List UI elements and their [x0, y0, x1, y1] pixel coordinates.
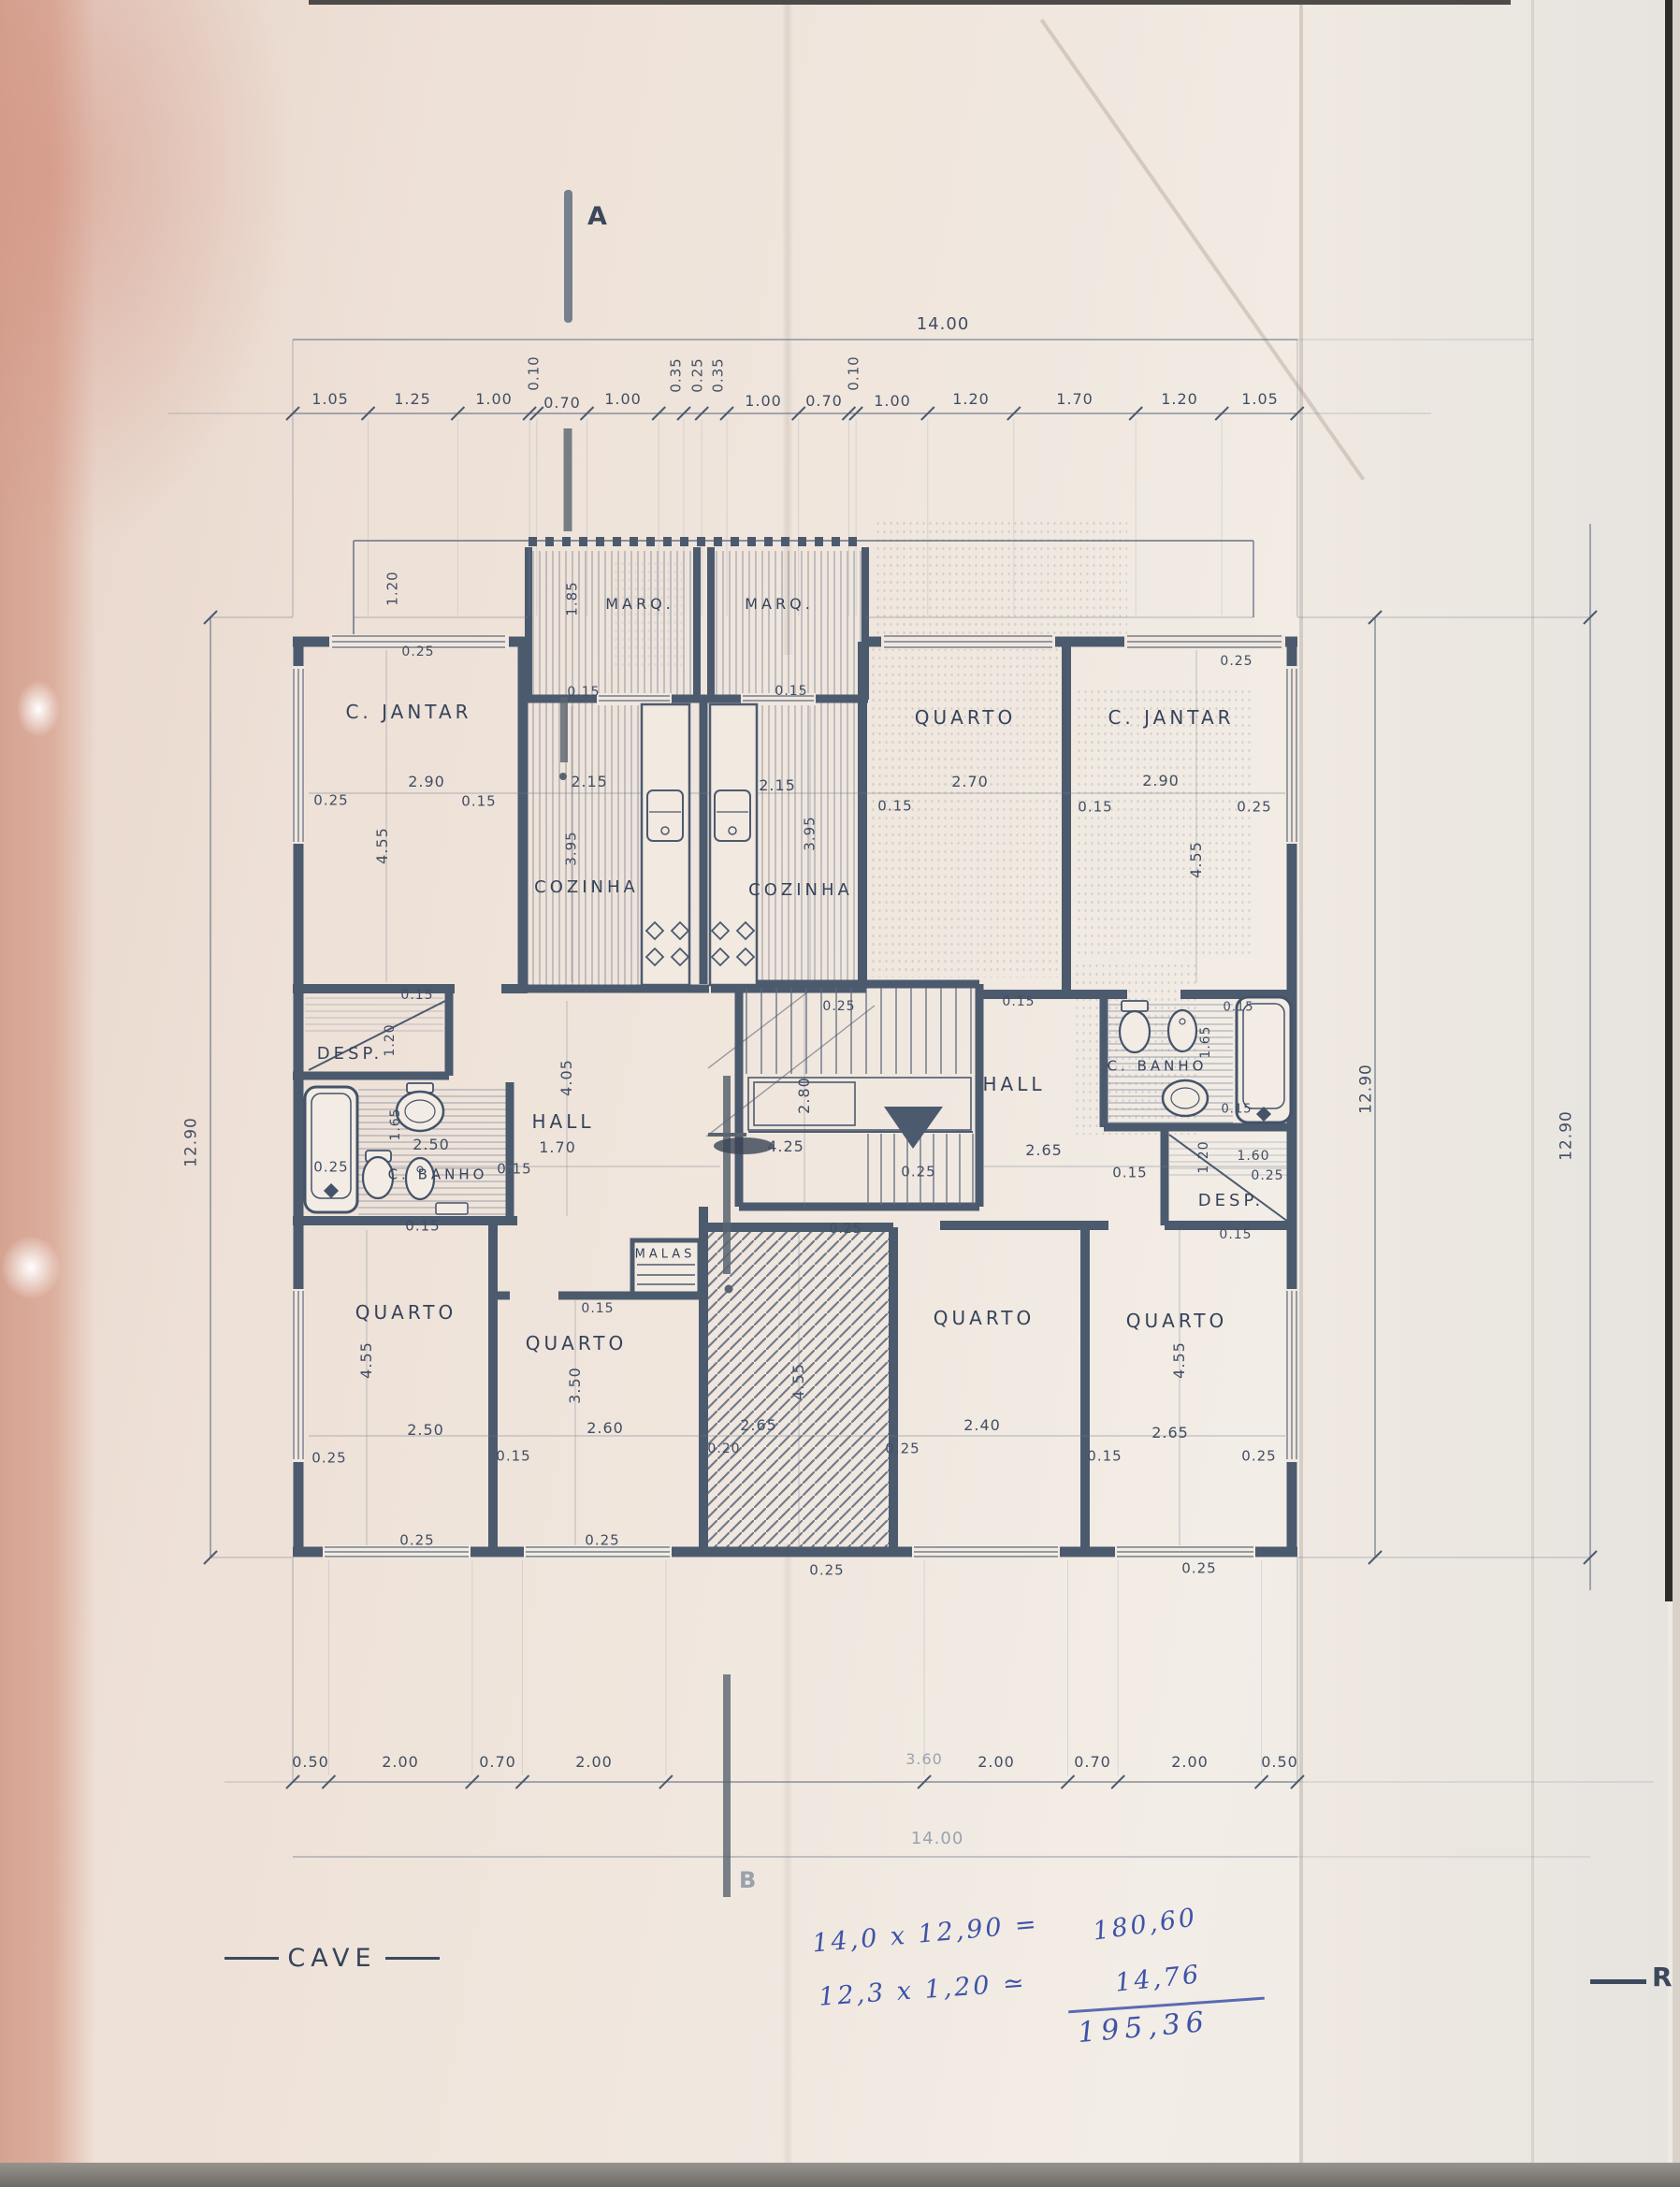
dimension-label: 2.65	[740, 1418, 777, 1433]
malas-closet	[632, 1240, 700, 1294]
plan-title-block: CAVE	[224, 1944, 440, 1973]
dimension-label: 0.70	[805, 394, 843, 409]
dimension-label: 2.50	[407, 1423, 444, 1438]
dimension-label: 2.60	[587, 1421, 624, 1436]
paper-fold-line	[782, 0, 793, 655]
dimension-label: 1.20	[386, 571, 400, 605]
paper-crease	[1040, 19, 1365, 481]
section-marker-a: A	[587, 204, 608, 229]
ink-smudge	[714, 1137, 774, 1154]
dimension-label: 0.15	[775, 685, 807, 698]
dimension-label: 3.95	[565, 831, 579, 865]
room-label-desp-right: DESP.	[1198, 1193, 1264, 1209]
dimension-label: 2.40	[963, 1418, 1001, 1433]
bathtub-icon	[1237, 997, 1291, 1122]
room-label-marq-left: MARQ.	[605, 597, 674, 612]
bidet-icon	[1168, 1010, 1196, 1051]
dimension-label: 2.90	[408, 775, 445, 789]
dimension-label: 4.55	[375, 827, 390, 864]
dimension-label: 2.00	[575, 1755, 613, 1770]
paper-stain	[0, 0, 318, 580]
adjacent-page-edge	[1673, 0, 1680, 2187]
kitchen-floor-left	[528, 702, 642, 985]
dimension-label: 0.25	[1237, 801, 1271, 815]
room-label-hall-left: HALL	[531, 1112, 594, 1131]
dimension-label: 1.20	[384, 1023, 397, 1056]
dimension-label: 1.65	[389, 1108, 402, 1140]
dimension-label: 2.50	[413, 1137, 450, 1152]
dimension-label: 1.05	[311, 392, 349, 407]
room-label-c-banho-right: C. BANHO	[1108, 1060, 1208, 1074]
room-label-marq-right: MARQ.	[745, 597, 814, 612]
dimension-label: 0.15	[1224, 1002, 1254, 1014]
dimension-label: 0.15	[1078, 801, 1112, 815]
handwriting-line1-result: 180,60	[1091, 1903, 1199, 1946]
washbasin-icon	[397, 1092, 443, 1131]
adjacent-sheet-label: R	[1652, 1964, 1673, 1991]
dimension-label: 0.15	[581, 1302, 614, 1315]
shaft-hatch	[708, 1232, 890, 1548]
sink-icon	[647, 790, 683, 841]
dimension-label: 12.90	[1359, 1064, 1375, 1114]
dimension-label: 3.95	[804, 816, 818, 850]
section-line-a	[564, 190, 572, 323]
sheet-r-dash	[1590, 1979, 1646, 1984]
dimension-label: 2.00	[382, 1755, 419, 1770]
toilet-icon	[363, 1157, 393, 1198]
texture-stipple	[613, 559, 683, 672]
dimension-label: 0.15	[1219, 1228, 1252, 1241]
dimension-label: 3.50	[568, 1367, 583, 1404]
dimension-label: 0.15	[1087, 1450, 1122, 1464]
scan-edge-top	[309, 0, 1511, 5]
texture-stipple	[875, 519, 1127, 636]
dimension-label: 0.15	[400, 989, 433, 1002]
section-marker-b: B	[739, 1869, 757, 1891]
kitchen-floor-right	[758, 702, 862, 985]
dimension-label: 0.25	[313, 1161, 348, 1175]
dimension-label: 0.70	[1074, 1755, 1111, 1770]
dimension-label: 2.00	[1171, 1755, 1209, 1770]
texture-stipple	[1076, 688, 1253, 954]
dimension-label: 1.70	[539, 1140, 576, 1155]
dimension-label: 1.70	[1056, 392, 1093, 407]
dimension-label: 14.00	[917, 316, 970, 333]
title-dash	[385, 1957, 440, 1960]
dimension-label: 1.00	[874, 394, 911, 409]
room-label-quarto-2: QUARTO	[526, 1334, 627, 1353]
dimension-label: 2.15	[571, 775, 608, 789]
dimension-label: 0.70	[543, 396, 581, 411]
room-label-quarto-4: QUARTO	[1126, 1311, 1227, 1330]
bidet-icon	[406, 1158, 434, 1199]
dimension-label: 0.25	[901, 1166, 935, 1180]
section-cut-line	[559, 428, 746, 1897]
dimension-label: 1.25	[394, 392, 431, 407]
dimension-label: 0.15	[405, 1220, 440, 1234]
dimension-label: 2.65	[1025, 1143, 1063, 1158]
plan-title: CAVE	[287, 1944, 376, 1973]
stair-direction-arrow	[884, 1107, 943, 1149]
dimension-label: 14.00	[911, 1831, 964, 1847]
dimension-label: 1.85	[566, 581, 580, 616]
floor-plan-drawing	[0, 0, 1680, 2187]
texture-stipple	[870, 645, 1062, 978]
dimension-label: 0.25	[1181, 1562, 1216, 1576]
dimension-label: 0.10	[528, 355, 542, 390]
dimension-label: 0.10	[847, 355, 862, 390]
bathtub-icon	[305, 1087, 357, 1212]
dimension-label: 1.65	[1199, 1025, 1212, 1058]
stove-burners-icon	[646, 922, 754, 965]
adjacent-page-edge	[1665, 0, 1673, 1601]
annotation-layer: C. JANTARQUARTOC. JANTARMARQ.MARQ.COZINH…	[0, 0, 1680, 2187]
windows	[292, 634, 1298, 1558]
dimension-label: 1.20	[952, 392, 990, 407]
dimension-label: 4.05	[559, 1059, 574, 1096]
scan-edge-bottom	[0, 2163, 1680, 2187]
dimension-label: 0.25	[313, 794, 348, 808]
dimension-label: 0.20	[707, 1442, 740, 1456]
dimension-label: 0.25	[691, 357, 705, 392]
room-label-quarto-1: QUARTO	[355, 1303, 456, 1322]
paper-fold-line	[1531, 0, 1534, 2187]
dimension-label: 0.35	[712, 357, 726, 392]
bathroom-fixtures-left	[305, 1083, 468, 1214]
pantry-diagonal	[1169, 1135, 1288, 1222]
room-label-hall-right: HALL	[982, 1075, 1045, 1093]
room-label-malas: MALAS	[635, 1249, 696, 1261]
paper-fold-line	[782, 1543, 793, 2187]
room-label-c-jantar-left: C. JANTAR	[345, 702, 471, 721]
texture-stipple	[1074, 962, 1200, 1135]
dimension-label: 0.25	[585, 1534, 619, 1548]
dimension-label: 1.00	[475, 392, 513, 407]
dimension-label: 0.15	[497, 1163, 531, 1177]
dimension-label: 2.90	[1142, 774, 1180, 789]
dimension-label: 4.55	[1172, 1341, 1187, 1379]
balcony-hatch-right	[715, 551, 862, 695]
dimension-label: 3.60	[905, 1752, 943, 1767]
punch-hole	[2, 1237, 60, 1298]
dimension-label: 4.55	[359, 1341, 374, 1379]
room-label-desp-left: DESP.	[317, 1046, 383, 1063]
wall-lines	[168, 340, 1654, 1857]
paper-fold-right-panel	[1303, 0, 1668, 2187]
dimension-label: 0.15	[877, 800, 912, 814]
paper-edge-tint	[0, 0, 95, 2187]
dimension-label: 0.25	[1241, 1450, 1276, 1464]
room-label-c-jantar-right: C. JANTAR	[1108, 708, 1234, 727]
dimension-label: 0.25	[885, 1442, 920, 1456]
dimension-label: 0.25	[1251, 1169, 1283, 1182]
dimension-label: 4.25	[767, 1139, 804, 1154]
dimension-label: 1.20	[1197, 1140, 1210, 1173]
punch-hole	[17, 681, 60, 737]
dimension-label: 12.90	[184, 1117, 200, 1167]
toilet-icon	[1120, 1011, 1150, 1052]
dimension-label: 1.00	[604, 392, 642, 407]
pantry-diagonal	[309, 1001, 445, 1070]
dimension-label: 0.25	[401, 645, 434, 659]
handwriting-line2-expression: 12,3 x 1,20 ≃	[818, 1968, 1027, 2011]
dimension-label: 0.15	[496, 1450, 530, 1464]
dimension-label: 0.70	[479, 1755, 516, 1770]
dimension-label: 0.15	[1222, 1104, 1253, 1116]
washbasin-icon	[1163, 1080, 1208, 1116]
dimension-label: 2.00	[978, 1755, 1015, 1770]
dimension-label: 0.25	[829, 1223, 862, 1236]
room-label-c-banho-left: C. BANHO	[388, 1168, 488, 1182]
kitchen-counters	[642, 704, 757, 985]
dimension-label: 0.15	[461, 795, 496, 809]
room-label-cozinha-left: COZINHA	[534, 879, 639, 896]
paper-artifacts	[0, 0, 1680, 2187]
handwriting-line1-expression: 14,0 x 12,90 =	[811, 1909, 1040, 1958]
dimension-label: 4.55	[791, 1363, 806, 1400]
dimension-label: 0.25	[822, 1000, 855, 1013]
room-label-quarto-3: QUARTO	[934, 1309, 1035, 1327]
dimension-label: 2.70	[951, 775, 989, 789]
dimension-label: 0.25	[311, 1452, 346, 1466]
dimension-label: 0.15	[1002, 995, 1035, 1008]
paper-fold-line	[1299, 0, 1303, 2187]
dimension-label: 1.20	[1161, 392, 1198, 407]
dimension-label: 2.65	[1151, 1426, 1189, 1441]
sink-icon	[715, 790, 750, 841]
dimension-label: 0.35	[670, 357, 684, 392]
dimension-label: 1.05	[1241, 392, 1279, 407]
dimension-label: 0.50	[1261, 1755, 1298, 1770]
dimension-label: 2.80	[797, 1077, 812, 1114]
room-label-quarto-top-right: QUARTO	[915, 708, 1016, 727]
bath-floor-left	[358, 1085, 506, 1217]
dimension-label: 0.15	[567, 686, 600, 699]
title-dash	[224, 1957, 279, 1960]
bath-floor-right	[1108, 999, 1233, 1124]
balcony-hatch-left	[532, 551, 693, 695]
dimension-label: 4.55	[1189, 841, 1204, 878]
staircase	[706, 986, 973, 1149]
pantry-hatch-right	[1169, 1139, 1288, 1180]
pantry-hatch-left	[305, 993, 443, 1033]
dimension-label: 12.90	[1559, 1110, 1575, 1161]
dimension-label: 0.15	[1112, 1166, 1147, 1180]
dimension-label: 0.25	[399, 1534, 434, 1548]
dimension-label: 1.00	[745, 394, 782, 409]
dimension-label: 0.25	[1220, 655, 1253, 668]
room-label-cozinha-right: COZINHA	[748, 882, 853, 899]
dimension-label: 0.50	[292, 1755, 329, 1770]
dimension-label: 0.25	[809, 1564, 844, 1578]
dimension-label: 2.15	[759, 778, 796, 793]
handwriting-line2-result: 14,76	[1114, 1960, 1203, 1997]
scanned-floor-plan-page: C. JANTARQUARTOC. JANTARMARQ.MARQ.COZINH…	[0, 0, 1680, 2187]
dimension-label: 1.60	[1237, 1150, 1269, 1163]
handwriting-total: 195,36	[1077, 2006, 1210, 2049]
bathroom-fixtures-right	[1120, 997, 1291, 1122]
